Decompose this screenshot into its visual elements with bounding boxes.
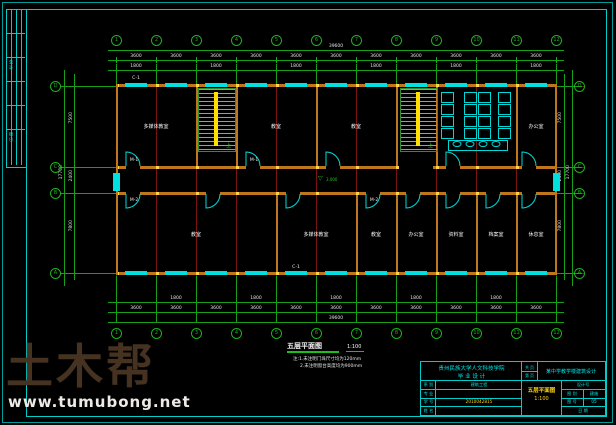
title-block-line [561, 406, 605, 407]
room-label: 多媒体教室 [126, 124, 186, 130]
info-row-value: 2010042815 [439, 399, 519, 404]
drawing-title: 五层平面图 [522, 386, 561, 394]
info-row-value: 建筑工程 [439, 382, 519, 388]
wash-basin [453, 142, 461, 147]
door-arc [286, 194, 300, 208]
right-row-label: 日 期 [562, 408, 604, 414]
right-row-value: 05 [584, 399, 604, 404]
school-name: 贵州民族大学人文科技学院 [423, 364, 520, 372]
watermark-logo: 土木帮 [6, 344, 156, 391]
info-row-label: 学 号 [422, 399, 435, 405]
plan-title: 五层平面图 [287, 341, 322, 351]
right-row-label: 设计号 [562, 382, 604, 388]
room-label: 教室 [166, 232, 226, 238]
info-row-label: 姓 名 [422, 408, 435, 414]
room-label: 多媒体教室 [286, 232, 346, 238]
pages-label: 共 页 [522, 365, 537, 371]
door-arc [206, 194, 220, 208]
door-arc [406, 194, 420, 208]
wash-basin [466, 142, 474, 147]
watermark-url: www.tumubong.net [8, 393, 191, 411]
project-name: 某中学教学楼建筑设计 [538, 368, 604, 375]
room-label: 教室 [246, 124, 306, 130]
door-tag: M-2 [368, 198, 380, 203]
room-label: 教室 [326, 124, 386, 130]
elevation-value: 3.000 [326, 177, 337, 182]
elevation-marker-icon: ▽ [318, 176, 323, 182]
title-block: 贵州民族大学人文科技学院 毕 业 设 计 共 页 第 页 某中学教学楼建筑设计 … [420, 361, 606, 416]
door-tag: M-1 [128, 158, 140, 163]
door-arc [522, 152, 536, 166]
pages-label: 第 页 [522, 373, 537, 379]
right-row-label: 图 号 [562, 399, 582, 405]
window-tag: C-1 [290, 265, 302, 270]
title-block-line [421, 389, 521, 390]
cad-drawing-sheet: 会 签 日 期 [0, 0, 616, 425]
plan-title-underline [287, 351, 339, 353]
right-row-label: 图 别 [562, 391, 582, 397]
wash-basin [492, 142, 500, 147]
wash-basin [479, 142, 487, 147]
right-row-value: 建施 [584, 391, 604, 397]
room-label: 办公室 [506, 124, 566, 130]
door-arc [486, 194, 500, 208]
plan-note: 注:1.未注明门垛尺寸均为120mm [293, 357, 361, 362]
info-row-label: 专 业 [422, 391, 435, 397]
plan-scale-underline [346, 351, 364, 352]
door-arc [446, 194, 460, 208]
school-subtitle: 毕 业 设 计 [423, 372, 520, 380]
door-tag: M-2 [128, 198, 140, 203]
door-arc [522, 194, 536, 208]
plan-note: 2.未注明窗台高度均为900mm [300, 364, 362, 369]
door-arc [446, 152, 460, 166]
title-block-line [421, 406, 521, 407]
title-block-line [421, 380, 605, 381]
door-arc [326, 152, 340, 166]
drawing-scale: 1:100 [522, 396, 561, 402]
window-tag: C-1 [130, 76, 142, 81]
room-label: 休息室 [506, 232, 566, 238]
plan-scale: 1:100 [347, 344, 361, 350]
info-row-label: 系 别 [422, 382, 435, 388]
door-tag: M-1 [248, 158, 260, 163]
title-block-line [521, 371, 537, 372]
